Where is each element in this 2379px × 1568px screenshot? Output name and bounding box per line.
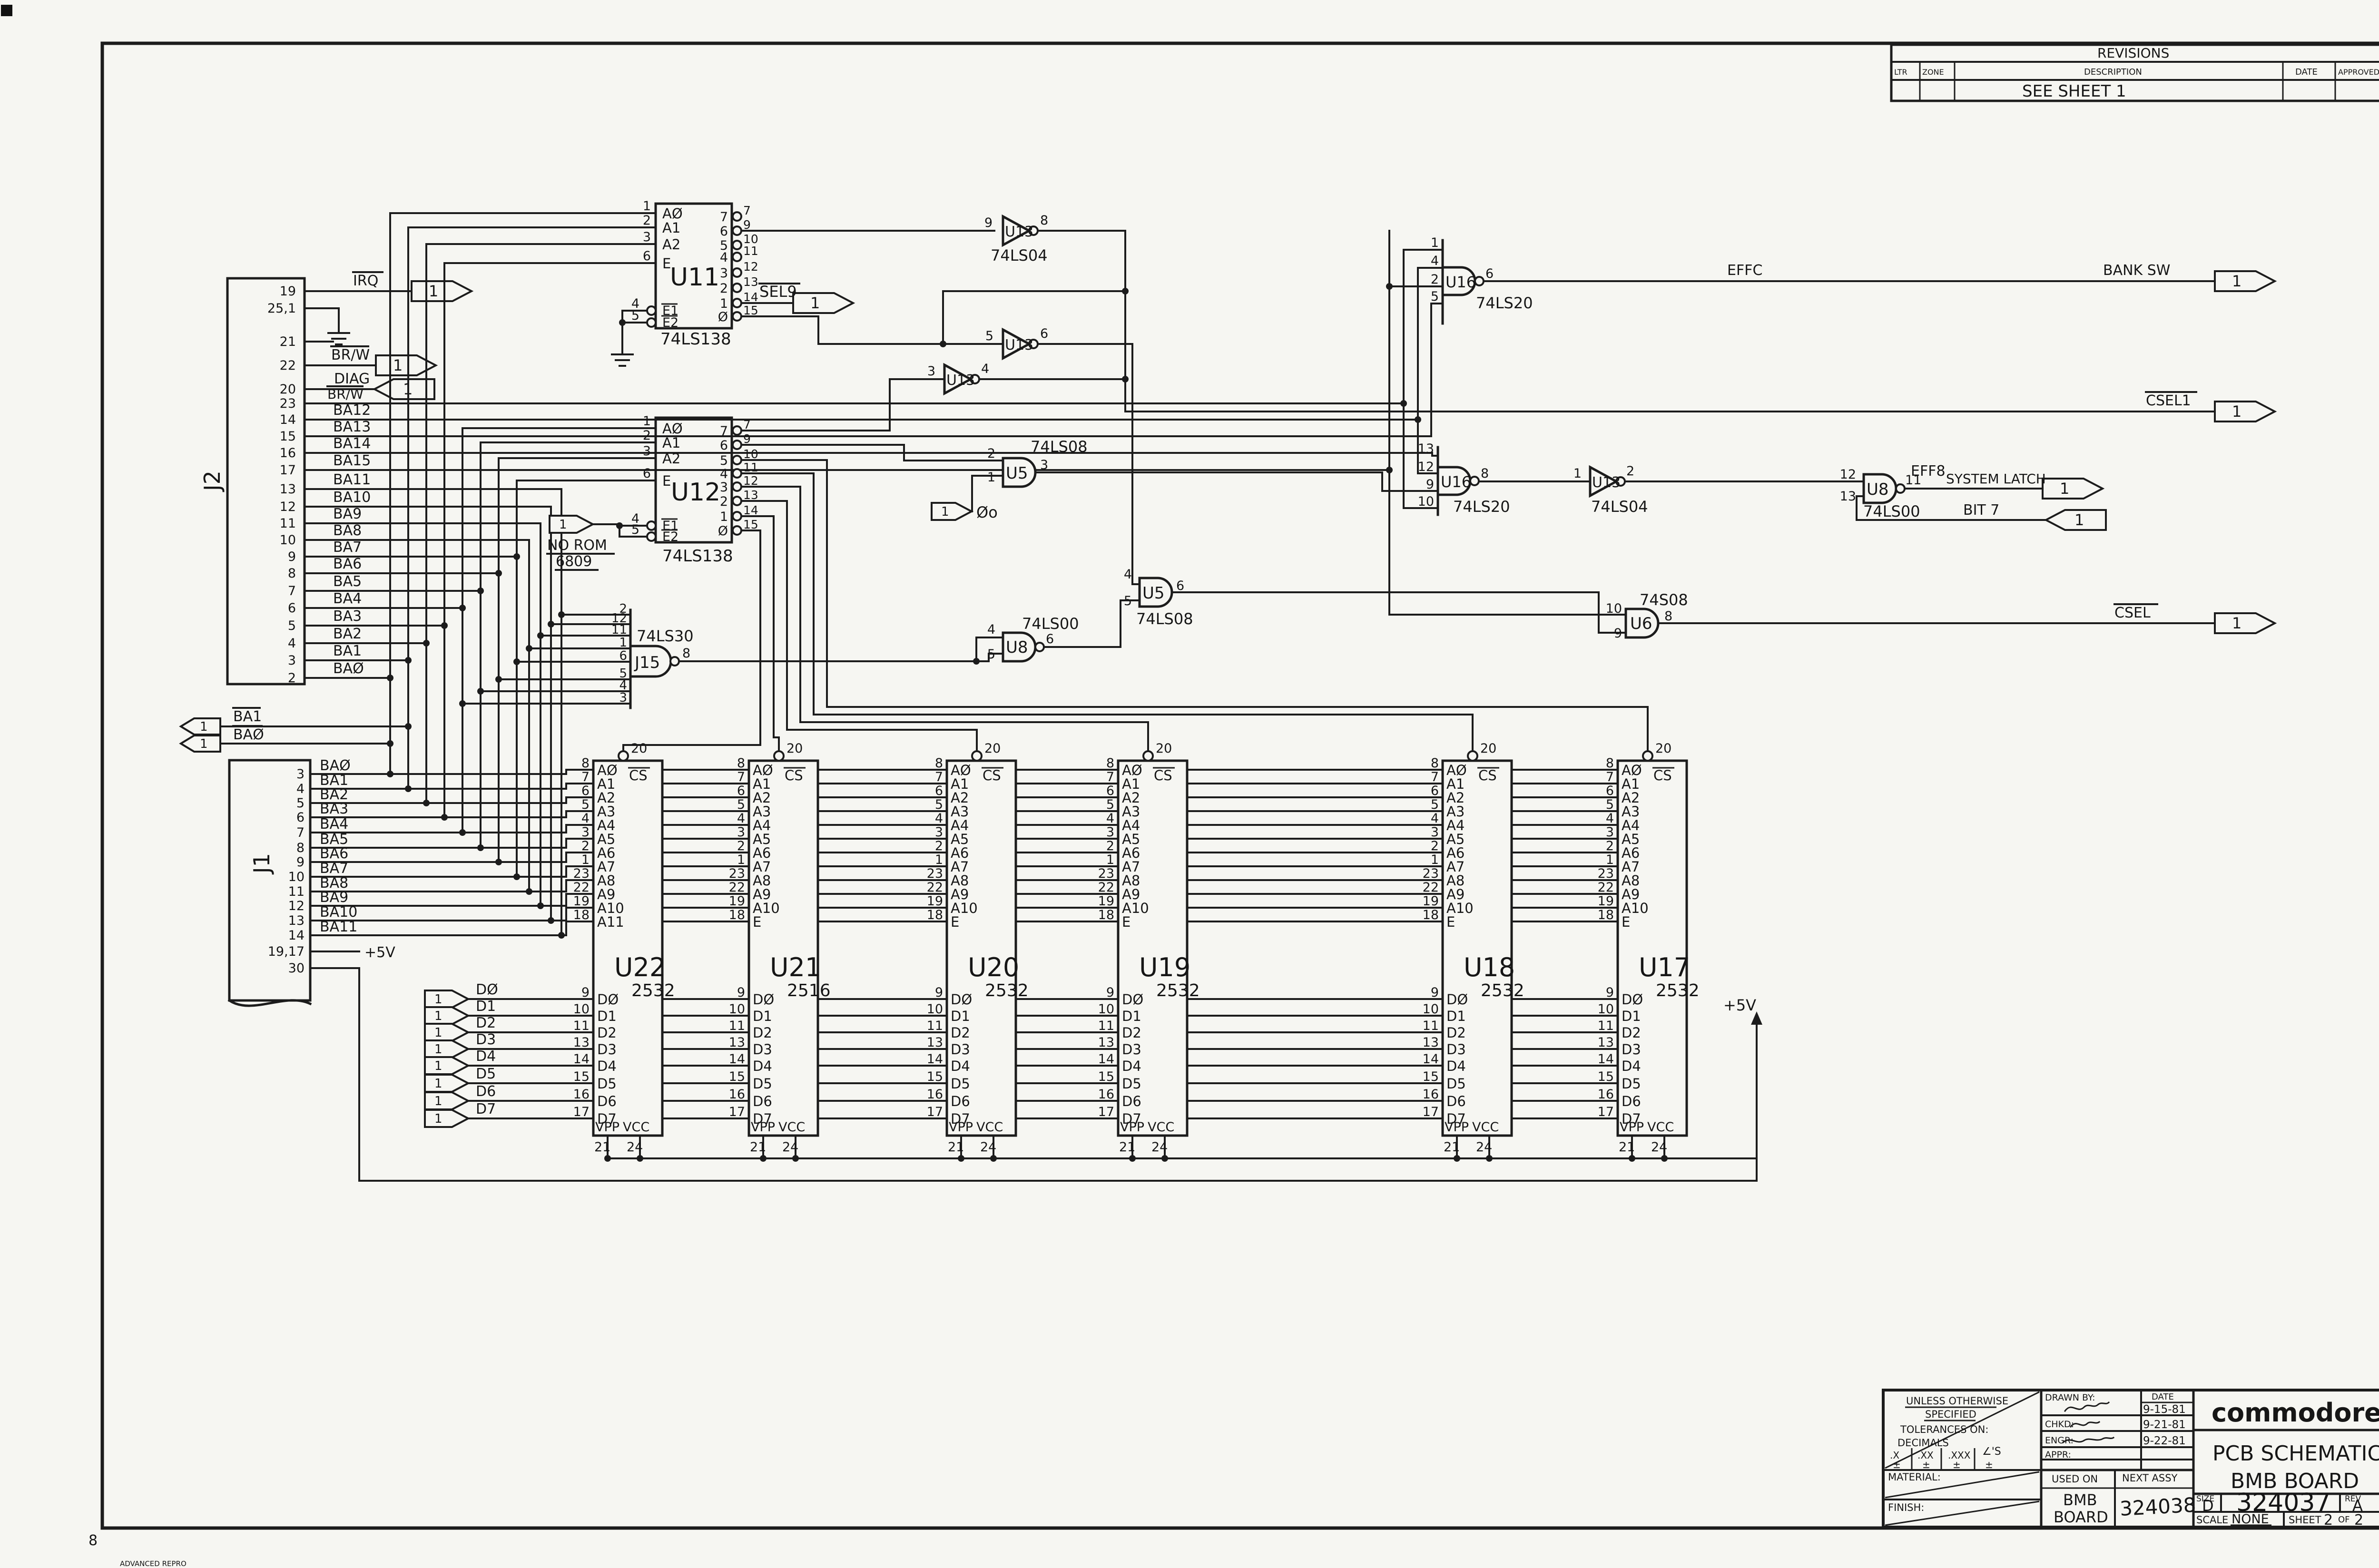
inverter-bubble (733, 456, 741, 464)
junction-dot (495, 570, 502, 577)
pin-label: CS (983, 767, 1001, 784)
pin-label: D3 (597, 1041, 617, 1058)
inverter-bubble (647, 306, 656, 315)
sheet-flag-number: 1 (941, 505, 949, 519)
pin-label: D3 (753, 1041, 772, 1058)
ba1-flag-label: BA1 (233, 708, 262, 725)
junction-dot (616, 522, 623, 529)
pin-number: 13 (743, 275, 758, 289)
pin-number: 8 (1431, 756, 1439, 771)
pin-number: 6 (288, 601, 296, 616)
pin-number: 10 (927, 1002, 943, 1017)
junction-dot (513, 658, 520, 665)
plus5v-label: +5V (1723, 996, 1756, 1014)
junction-dot (548, 621, 554, 627)
inverter-bubble (733, 212, 741, 221)
pin-number: 22 (1598, 880, 1614, 895)
pin-label: VCC (1148, 1120, 1174, 1135)
pin-number: 9 (743, 432, 751, 446)
pin-label: VCC (1472, 1120, 1499, 1135)
inverter-bubble (733, 497, 741, 505)
pin-number: 13 (1098, 1035, 1114, 1050)
pin-number: 20 (631, 741, 647, 756)
pin-number: 20 (1655, 741, 1671, 756)
ba0-flag-label: BAØ (233, 726, 264, 743)
pin-number: 20 (786, 741, 803, 756)
wire (305, 304, 1443, 436)
wire (305, 308, 339, 333)
pin-number: 7 (1106, 770, 1114, 784)
pin-number: 19 (573, 894, 590, 909)
wire (310, 968, 1757, 1181)
pin-number: 21 (1119, 1140, 1135, 1155)
sheet-flag-in (425, 1024, 468, 1041)
signal-label: D3 (476, 1031, 496, 1048)
pin-label: D6 (1622, 1093, 1641, 1109)
pin-number: 6 (1606, 784, 1614, 798)
csel1-label: CSEL1 (2146, 392, 2191, 409)
wire (741, 379, 944, 431)
output-number: 6 (720, 224, 728, 239)
pin-number: 2 (737, 839, 745, 853)
junction-dot (513, 873, 520, 880)
pin-number: 5 (581, 797, 590, 812)
wire (1036, 472, 1438, 491)
signal-label: BA10 (333, 489, 371, 506)
pin-label: A1 (662, 220, 680, 236)
pin-number: 14 (743, 503, 758, 517)
pin-label: VPP (751, 1120, 775, 1135)
sheet-flag-out (2215, 613, 2275, 633)
output-number: 3 (720, 266, 728, 281)
sheet-flag-in (425, 990, 468, 1008)
pin-label: D1 (1446, 1008, 1466, 1024)
gate-ref: U13 (946, 372, 975, 389)
pin-label: E (662, 473, 671, 489)
csel-label: CSEL (2114, 605, 2151, 621)
gate-part: 74LS20 (1476, 294, 1533, 312)
pin-label: A1 (662, 435, 680, 451)
inverter-bubble (647, 521, 656, 530)
pin-number: 10 (280, 533, 296, 548)
pin-number: 16 (1423, 1087, 1439, 1102)
junction-dot (526, 888, 532, 895)
sheet-flag-number: 1 (2232, 272, 2241, 290)
pin-number: 16 (729, 1087, 745, 1102)
pin-number: 19 (927, 894, 943, 909)
pin-label: A11 (597, 914, 624, 930)
signal-label: D2 (476, 1015, 496, 1031)
pin-label: VCC (778, 1120, 805, 1135)
pin-number: 11 (927, 1019, 943, 1033)
pin-label: D2 (951, 1025, 970, 1041)
sheet-flag-out (2215, 271, 2275, 291)
inverter-bubble (1143, 751, 1153, 761)
junction-dot (423, 800, 430, 806)
pin-label: D6 (753, 1093, 772, 1109)
gate-ref: U13 (1005, 224, 1033, 240)
output-number: 2 (720, 281, 728, 296)
sheet-flag-number: 1 (2060, 480, 2069, 498)
pin-label: E2 (662, 315, 678, 330)
inverter-bubble (1896, 484, 1905, 493)
junction-dot (1122, 376, 1129, 382)
pin-number: 22 (1423, 880, 1439, 895)
pin-number: 1 (737, 853, 745, 867)
gate-ref: U16 (1445, 273, 1476, 291)
pin-label: D4 (753, 1058, 772, 1074)
junction-dot (1122, 288, 1129, 294)
junction-dot (477, 688, 484, 695)
pin-number: 12 (280, 500, 296, 514)
pin-number: 19 (280, 284, 296, 299)
wire (741, 487, 1148, 751)
inverter-bubble (733, 226, 741, 235)
schematic-sheet: 8 ADVANCED REPRO REVISIONS LTR ZONE DESC… (0, 0, 2379, 1568)
pin-number: 2 (581, 839, 590, 853)
pin-number: 7 (581, 770, 590, 784)
pin-number: 24 (1151, 1140, 1168, 1155)
junction-dot (548, 917, 554, 924)
pin-number: 3 (619, 691, 627, 705)
pin-number: 13 (927, 1035, 943, 1050)
pin-number: 3 (737, 825, 745, 840)
rom-ref: U18 (1464, 952, 1515, 982)
signal-label: BA4 (333, 590, 362, 607)
ic-part: 74LS138 (662, 547, 733, 566)
pin-label: E (951, 914, 959, 930)
tol-pm1: ± (1893, 1459, 1901, 1470)
sheet-flag-in (425, 1110, 468, 1127)
phi0-label: Øo (976, 503, 998, 521)
junction-dot (387, 771, 393, 777)
pin-number: 3 (1431, 825, 1439, 840)
pin-label: D5 (753, 1076, 772, 1092)
junction-dot (405, 657, 412, 664)
pin-number: 11 (288, 884, 305, 899)
pin-number: 17 (1098, 1105, 1114, 1119)
brand-logo: commodore (2212, 1398, 2379, 1428)
pin-label: D6 (597, 1093, 617, 1109)
inverter-bubble (1475, 277, 1484, 285)
pin-number: 9 (1106, 985, 1114, 1000)
inverter-bubble (733, 482, 741, 491)
tol-unless1: UNLESS OTHERWISE (1906, 1395, 2008, 1407)
repro-note: ADVANCED REPRO (120, 1559, 187, 1568)
pin-label: DØ (1122, 991, 1143, 1008)
pin-number: 21 (1444, 1140, 1460, 1155)
output-number: Ø (718, 310, 728, 324)
pin-number: 5 (288, 618, 296, 633)
pin-number: 1 (1573, 466, 1582, 481)
signal-label: BA1 (333, 643, 362, 659)
col-date: DATE (2295, 67, 2318, 77)
sheet-flag-number: 1 (200, 737, 208, 751)
rom-part: 2532 (1481, 981, 1524, 1000)
pin-label: CS (1154, 767, 1172, 784)
rom-ref: U17 (1639, 952, 1690, 982)
pin-label: D1 (1122, 1008, 1141, 1024)
sheet-flag-in (425, 1075, 468, 1092)
pin-number: 2 (1626, 464, 1634, 479)
pin-label: D5 (597, 1076, 617, 1092)
pin-number: 2 (1431, 839, 1439, 853)
pin-number: 16 (280, 446, 296, 461)
pin-label: E (1122, 914, 1131, 930)
signal-label: BA6 (333, 556, 362, 572)
pin-number: 3 (927, 364, 935, 379)
inverter-bubble (733, 526, 741, 535)
pin-number: 1 (935, 853, 943, 867)
signal-label: BA15 (333, 452, 371, 469)
pin-number: 13 (280, 482, 296, 497)
next-assy-label: NEXT ASSY (2122, 1472, 2178, 1484)
wire (741, 473, 1473, 751)
pin-number: 6 (643, 249, 651, 264)
pin-number: 7 (743, 204, 751, 217)
pin-label: DØ (1622, 991, 1643, 1008)
pin-number: 15 (573, 1069, 590, 1084)
zone-number: 8 (88, 1532, 98, 1549)
pin-number: 19 (1098, 894, 1114, 909)
pin-number: 5 (987, 647, 995, 662)
pin-number: 7 (1431, 770, 1439, 784)
pin-number: 5 (1606, 797, 1614, 812)
revisions-table: REVISIONS LTR ZONE DESCRIPTION DATE APPR… (1891, 45, 2379, 101)
pin-number: 2 (643, 428, 651, 443)
inverter-bubble (733, 312, 741, 321)
sheet-total: 2 (2354, 1512, 2363, 1529)
pin-number: 1 (581, 853, 590, 867)
pin-number: 12 (1840, 467, 1856, 482)
pin-number: 18 (927, 908, 943, 922)
pin-label: VCC (1647, 1120, 1674, 1135)
system-latch-label: SYSTEM LATCH (1946, 471, 2046, 487)
sheet-flag-number: 1 (434, 1059, 442, 1073)
sheet-flag-in (932, 503, 972, 520)
pin-number: 9 (743, 218, 751, 232)
pin-number: 9 (288, 549, 296, 564)
sheet-flag-out (793, 293, 853, 313)
tol-line1: TOLERANCES ON: (1900, 1424, 1988, 1435)
signal-label: D7 (476, 1101, 496, 1117)
pin-number: 24 (1476, 1140, 1492, 1155)
pin-label: D4 (1446, 1058, 1466, 1074)
pin-label: AØ (662, 206, 683, 222)
pin-label: D1 (597, 1008, 617, 1024)
junction-dot (405, 723, 412, 730)
rom-part: 2532 (985, 981, 1029, 1000)
pin-number: 19,17 (268, 944, 305, 959)
pin-label: E (753, 914, 761, 930)
sheet-flag-in (425, 1040, 468, 1058)
pin-number: 20 (984, 741, 1001, 756)
sheet-flag-number: 1 (434, 1042, 442, 1057)
sheet-flag-number: 1 (200, 720, 208, 734)
pin-number: 13 (1840, 489, 1856, 504)
wire (741, 316, 1003, 344)
pin-label: D4 (1122, 1058, 1141, 1074)
pin-number: 1 (1431, 853, 1439, 867)
sheet-flag-number: 1 (559, 518, 567, 532)
junction-dot (387, 740, 393, 747)
signal-label: DØ (476, 981, 498, 998)
inverter-bubble (733, 441, 741, 449)
wire (741, 460, 1648, 751)
inverter-bubble (733, 299, 741, 307)
sheet-flag-out (2043, 479, 2103, 499)
pin-number: 9 (737, 985, 745, 1000)
gate-ref: U8 (1867, 480, 1889, 499)
scale-label: SCALE (2196, 1514, 2228, 1526)
pin-number: 22 (573, 880, 590, 895)
pin-number: 4 (1124, 567, 1132, 582)
gate-ref: U5 (1142, 584, 1165, 603)
pin-label: D2 (753, 1025, 772, 1041)
signal-label: BA8 (333, 522, 362, 539)
tol-unless2: SPECIFIED (1925, 1409, 1976, 1420)
pin-number: 10 (1418, 494, 1434, 509)
pin-number: 6 (296, 810, 305, 825)
pin-number: 11 (743, 244, 758, 258)
pin-label: D3 (1622, 1041, 1641, 1058)
inverter-bubble (733, 426, 741, 435)
pin-number: 6 (935, 784, 943, 798)
pin-number: 6 (1431, 784, 1439, 798)
junction-dot (558, 932, 565, 939)
pin-label: D1 (1622, 1008, 1641, 1024)
junction-dot (495, 676, 502, 683)
signature-drawn (2065, 1402, 2109, 1411)
pin-number: 14 (573, 1052, 590, 1067)
pin-number: 11 (743, 461, 758, 474)
pin-number: 6 (1046, 632, 1054, 647)
pin-number: 10 (1098, 1002, 1114, 1017)
inverter-bubble (647, 532, 656, 541)
output-number: 3 (720, 480, 728, 495)
gate-ref: U16 (1441, 473, 1471, 491)
pin-number: 11 (1098, 1019, 1114, 1033)
appr-label: APPR: (2045, 1450, 2071, 1460)
signal-label: BA2 (333, 626, 362, 642)
pin-number: 16 (1598, 1087, 1614, 1102)
pin-number: 20 (1480, 741, 1496, 756)
pin-number: 3 (1106, 825, 1114, 840)
junction-dot (619, 319, 626, 326)
junction-dot (387, 675, 393, 681)
rom-part: 2532 (631, 981, 675, 1000)
pin-number: 17 (1423, 1105, 1439, 1119)
pin-number: 22 (1098, 880, 1114, 895)
sheet-flag-number: 1 (429, 282, 438, 300)
pin-number: 13 (1423, 1035, 1439, 1050)
pin-label: DØ (1446, 991, 1468, 1008)
gate-ref: U13 (1005, 337, 1033, 353)
pin-number: 16 (927, 1087, 943, 1102)
pin-number: 4 (1431, 254, 1439, 268)
junction-dot (459, 700, 466, 707)
date-header: DATE (2152, 1392, 2174, 1402)
pin-number: 3 (1606, 825, 1614, 840)
pin-number: 17 (927, 1105, 943, 1119)
pin-number: 17 (729, 1105, 745, 1119)
revisions-title: REVISIONS (2097, 45, 2169, 61)
pin-number: 9 (1431, 985, 1439, 1000)
bank-sw-label: BANK SW (2103, 262, 2170, 279)
pin-number: 21 (750, 1140, 766, 1155)
signal-label: BAØ (333, 660, 364, 677)
drawn-date: 9-15-81 (2143, 1403, 2186, 1416)
pin-label: DØ (753, 991, 774, 1008)
pin-number: 1 (643, 414, 651, 429)
next-assy-value: 324038 (2119, 1493, 2197, 1520)
pin-number: 13 (729, 1035, 745, 1050)
pin-number: 8 (296, 841, 305, 855)
inverter-bubble (733, 284, 741, 292)
gate-part: 74LS00 (1863, 502, 1920, 520)
sheet-flag-in (425, 1057, 468, 1074)
pin-number: 5 (935, 797, 943, 812)
pin-number: 10 (1598, 1002, 1614, 1017)
inverter-bubble (1468, 751, 1477, 761)
sheet-frame: 8 ADVANCED REPRO (1, 5, 2379, 1568)
pin-number: 18 (729, 908, 745, 922)
pin-number: 2 (1606, 839, 1614, 853)
pin-number: 14 (927, 1052, 943, 1067)
sheet-flag-number: 1 (434, 1009, 442, 1023)
pin-number: 14 (743, 290, 758, 304)
pin-number: 15 (1098, 1069, 1114, 1084)
pin-number: 21 (280, 334, 296, 349)
pin-number: 4 (581, 811, 590, 826)
col-description: DESCRIPTION (2084, 67, 2142, 77)
signature-chkd (2071, 1422, 2099, 1427)
rom-ref: U22 (614, 952, 666, 982)
pin-number: 11 (729, 1019, 745, 1033)
pin-number: 3 (288, 653, 296, 668)
pin-number: 12 (1418, 460, 1434, 474)
pin-number: 19 (1598, 894, 1614, 909)
scale-value: NONE (2232, 1512, 2269, 1527)
pin-number: 8 (288, 566, 296, 581)
junction-dot (1386, 283, 1393, 290)
pin-label: CS (629, 767, 648, 784)
pin-number: 9 (1606, 985, 1614, 1000)
sheet-flag-number: 1 (2232, 402, 2241, 421)
sheet-flag-number: 1 (434, 992, 442, 1007)
pin-number: 24 (627, 1140, 643, 1155)
pin-number: 2 (935, 839, 943, 853)
used-on-value-1: BMB (2063, 1491, 2097, 1509)
tol-pm4: ± (1985, 1459, 1993, 1470)
pin-number: 5 (1431, 289, 1439, 304)
pin-number: 5 (1431, 797, 1439, 812)
gate-part: 74LS00 (1022, 615, 1079, 633)
pin-number: 3 (935, 825, 943, 840)
signal-label: D5 (476, 1066, 496, 1082)
pin-number: 4 (1106, 811, 1114, 826)
pin-number: 2 (643, 213, 651, 228)
pin-label: CS (1478, 767, 1497, 784)
pin-label: D5 (951, 1076, 970, 1092)
junction-dot (459, 605, 466, 611)
junction-dot (405, 785, 412, 792)
junction-dot (1415, 416, 1421, 423)
gate-ref: U5 (1006, 464, 1028, 483)
effc-label: EFFC (1727, 262, 1762, 279)
pin-number: 23 (1423, 866, 1439, 881)
inverter-bubble (619, 751, 628, 761)
